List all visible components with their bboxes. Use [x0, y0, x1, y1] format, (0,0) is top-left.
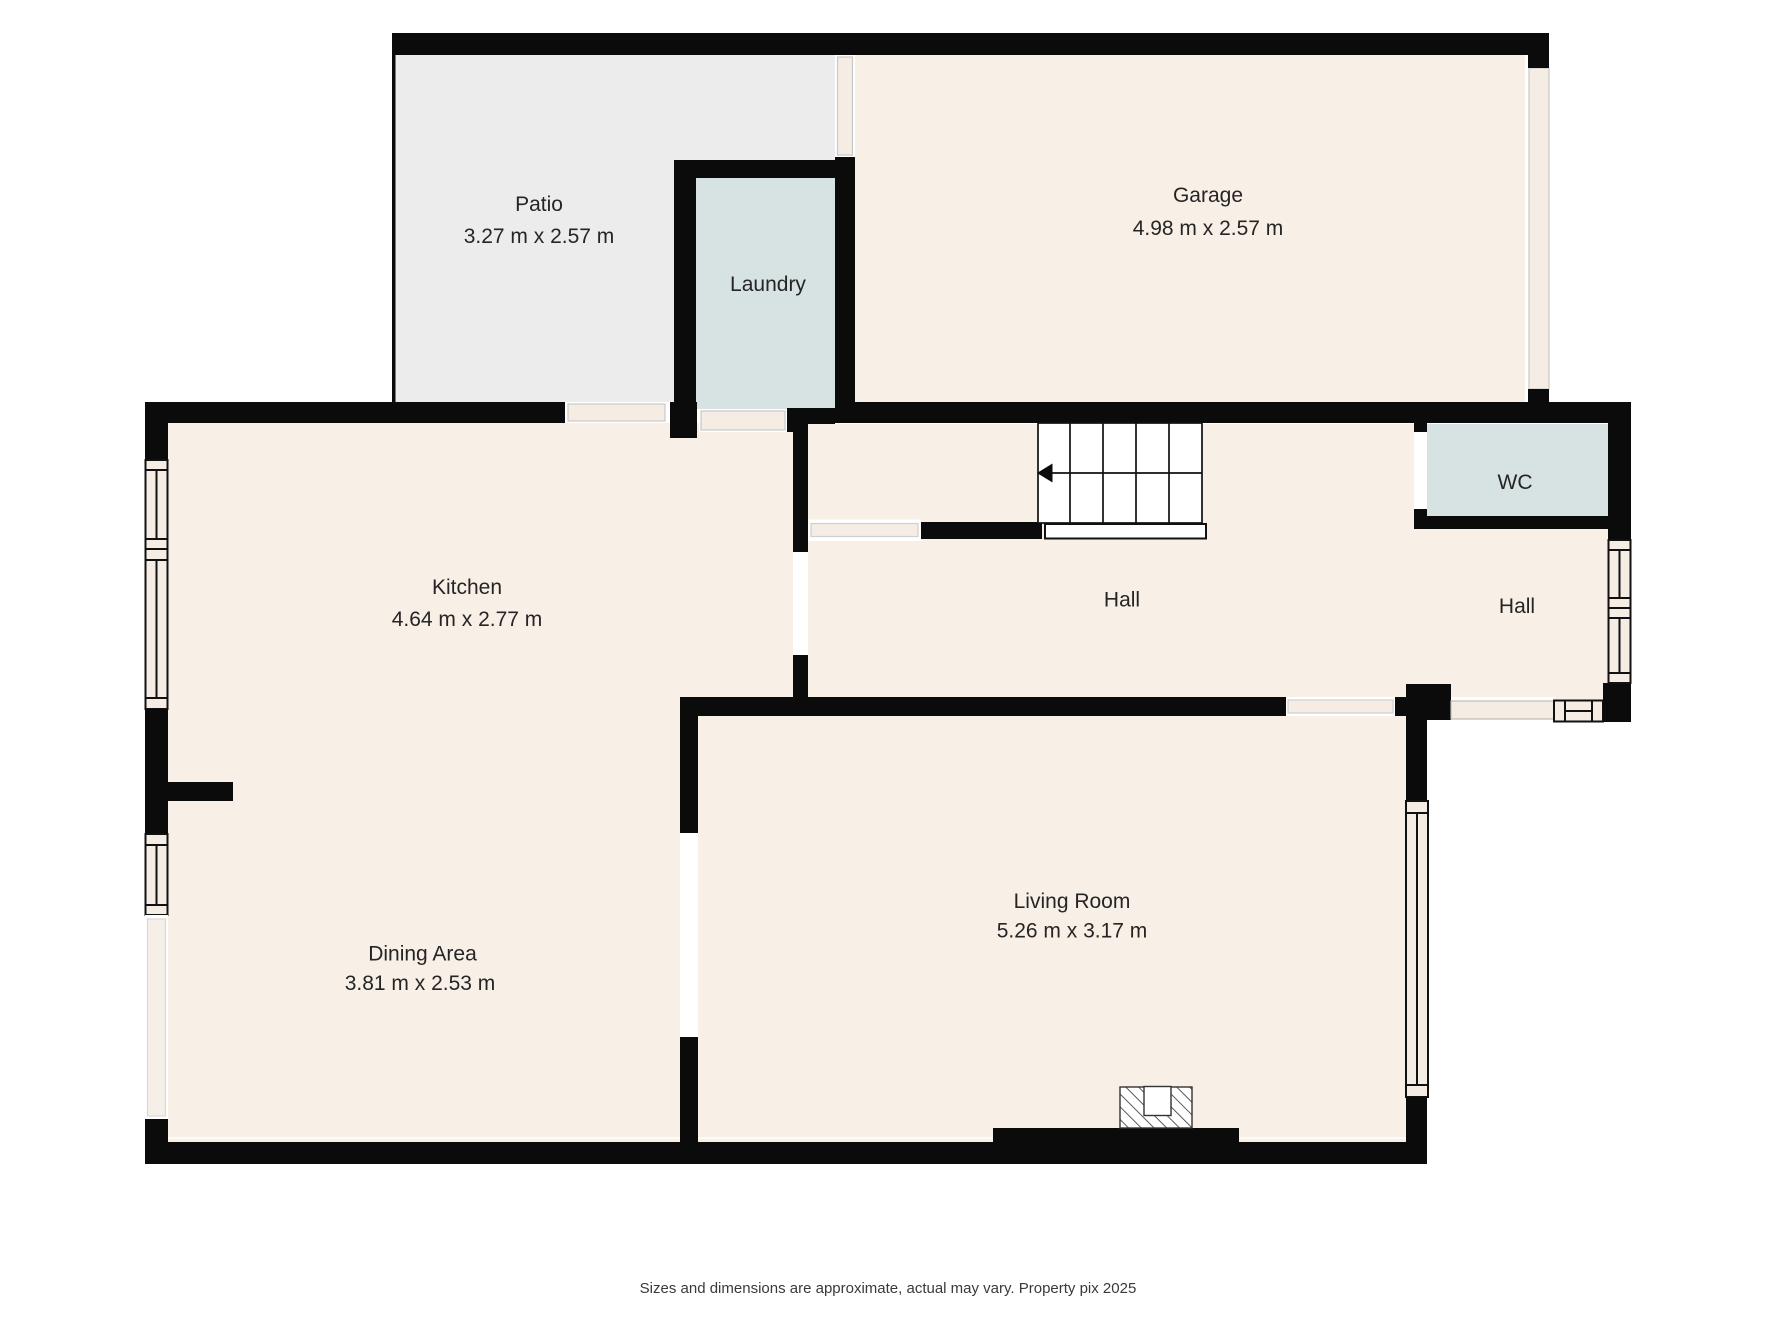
svg-text:Garage: Garage [1173, 184, 1243, 207]
svg-text:3.81 m x 2.53 m: 3.81 m x 2.53 m [345, 972, 496, 995]
svg-text:Hall: Hall [1499, 595, 1535, 618]
svg-text:Sizes and dimensions are appro: Sizes and dimensions are approximate, ac… [640, 1280, 1137, 1297]
svg-text:Hall: Hall [1104, 589, 1140, 612]
svg-text:5.26 m x 3.17 m: 5.26 m x 3.17 m [997, 920, 1148, 943]
svg-text:Patio: Patio [515, 193, 563, 216]
svg-text:3.27 m x 2.57 m: 3.27 m x 2.57 m [464, 225, 615, 248]
svg-text:Kitchen: Kitchen [432, 576, 502, 599]
svg-text:Laundry: Laundry [730, 273, 806, 296]
svg-text:Dining Area: Dining Area [368, 943, 477, 966]
svg-text:WC: WC [1498, 471, 1533, 494]
svg-text:4.98 m x 2.57 m: 4.98 m x 2.57 m [1133, 217, 1284, 240]
svg-text:Living Room: Living Room [1014, 890, 1131, 913]
svg-text:4.64 m x 2.77 m: 4.64 m x 2.77 m [392, 608, 543, 631]
